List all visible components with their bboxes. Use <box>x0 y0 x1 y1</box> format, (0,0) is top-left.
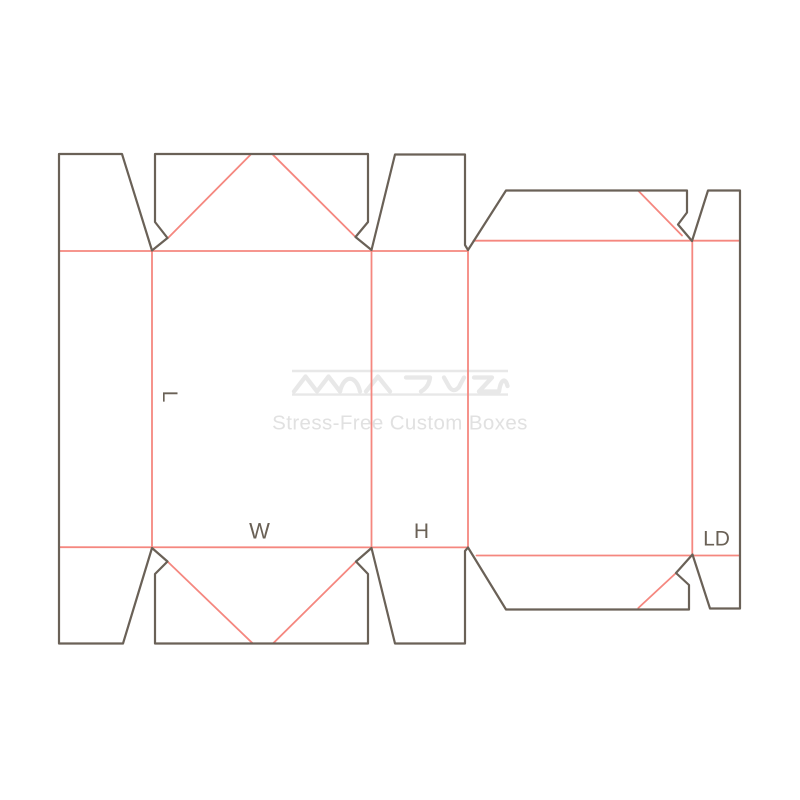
logo-glyph-t <box>406 378 430 392</box>
brand-tagline: Stress-Free Custom Boxes <box>272 412 528 435</box>
crease-bottom-flap-diagonal-left <box>168 562 253 644</box>
dieline-canvas: Stress-Free Custom Boxes <box>0 0 800 800</box>
brand-watermark: Stress-Free Custom Boxes <box>272 371 528 435</box>
logo-glyph-wave <box>340 379 360 392</box>
logo-glyph-u <box>444 378 464 391</box>
logo-glyph-a <box>366 377 390 392</box>
crease-top-flap-diagonal-left <box>168 155 251 238</box>
logo-glyph-s <box>474 378 498 392</box>
dieline-drawing: Stress-Free Custom Boxes <box>0 0 800 800</box>
label-height: H <box>414 520 429 543</box>
crease-right-top-flap-diagonal <box>638 191 682 236</box>
label-length: L <box>158 391 181 403</box>
label-lid: LD <box>703 528 730 551</box>
logo-glyph-tail <box>499 381 508 392</box>
crease-top-flap-diagonal-right <box>273 155 356 237</box>
brand-logo <box>294 377 508 392</box>
label-width: W <box>249 519 270 544</box>
crease-right-bottom-flap-diagonal <box>638 573 676 608</box>
logo-glyph-m <box>294 377 340 392</box>
crease-bottom-flap-diagonal-right <box>273 562 356 644</box>
